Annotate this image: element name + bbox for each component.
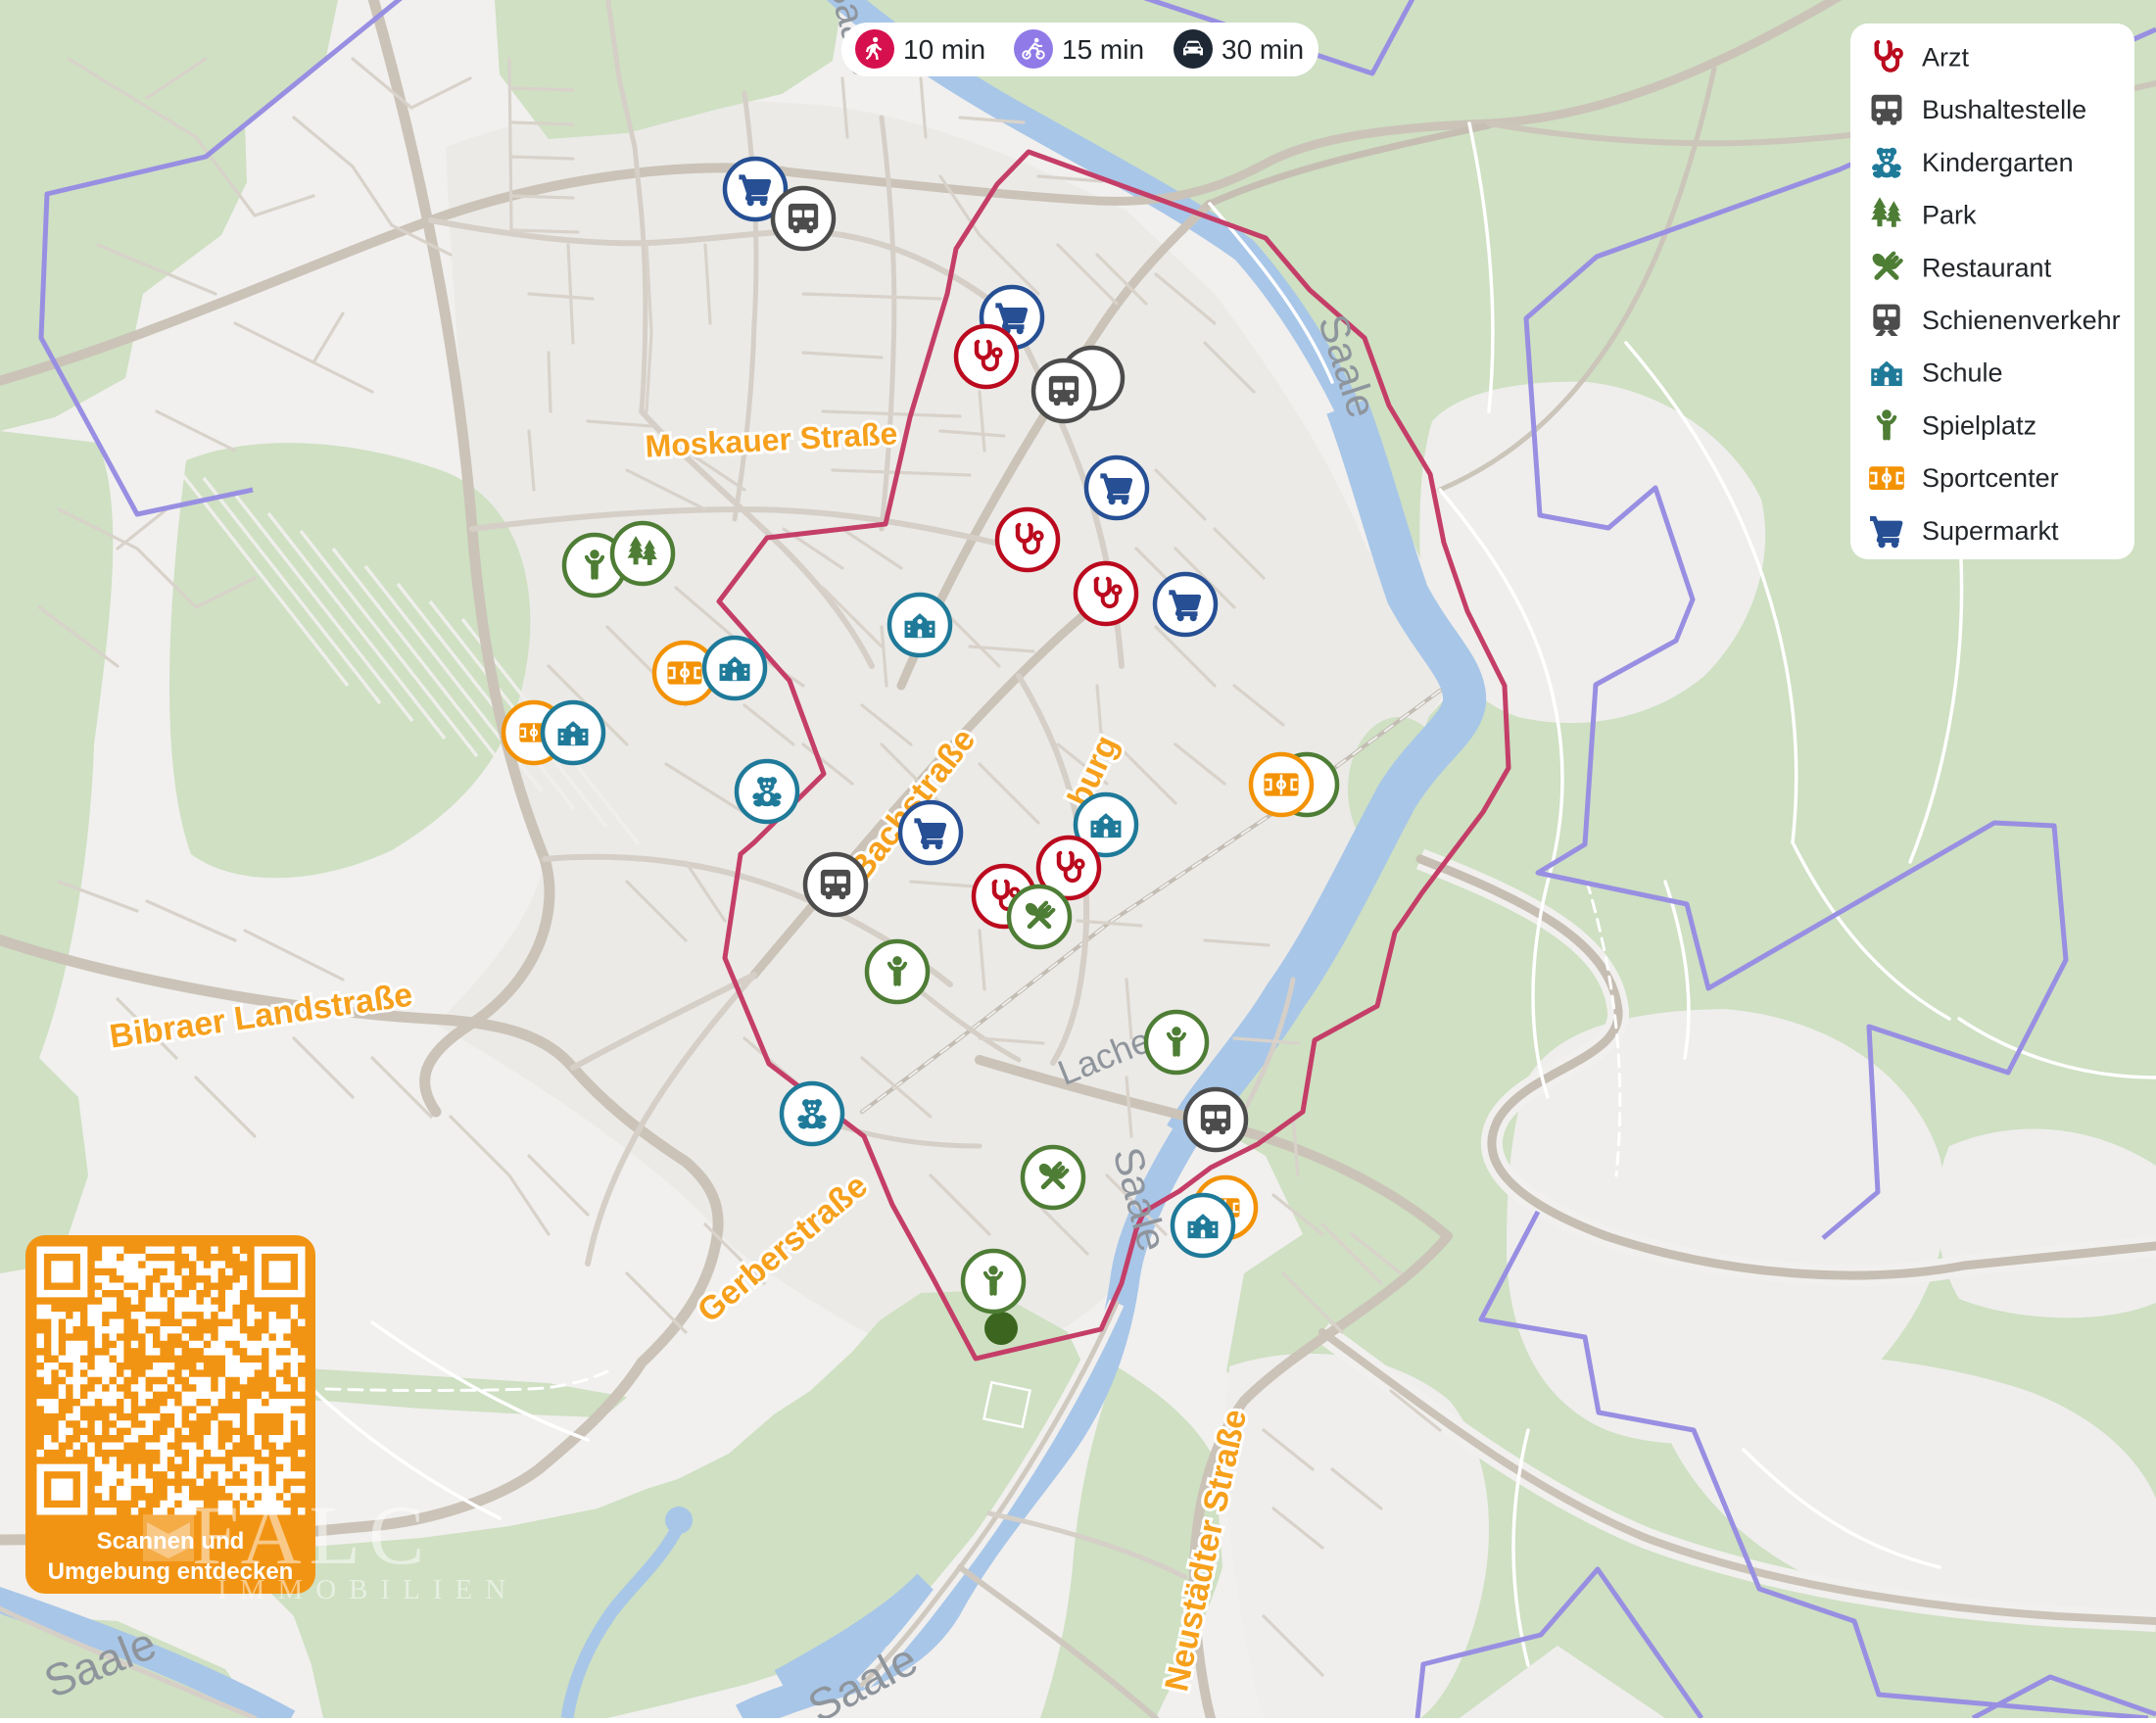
svg-text:30 min: 30 min bbox=[1222, 34, 1304, 65]
svg-text:Restaurant: Restaurant bbox=[1922, 253, 2052, 282]
svg-text:10 min: 10 min bbox=[903, 34, 985, 65]
svg-text:Supermarkt: Supermarkt bbox=[1922, 516, 2059, 546]
svg-text:Park: Park bbox=[1922, 201, 1977, 230]
svg-text:Sportcenter: Sportcenter bbox=[1922, 463, 2059, 493]
svg-text:Schienenverkehr: Schienenverkehr bbox=[1922, 306, 2121, 335]
svg-text:Spielplatz: Spielplatz bbox=[1922, 410, 2036, 440]
svg-text:15 min: 15 min bbox=[1062, 34, 1144, 65]
svg-text:Bushaltestelle: Bushaltestelle bbox=[1922, 95, 2086, 124]
svg-text:Schule: Schule bbox=[1922, 359, 2003, 388]
svg-text:IMMOBILIEN: IMMOBILIEN bbox=[217, 1574, 518, 1605]
svg-text:Arzt: Arzt bbox=[1922, 43, 1970, 72]
svg-text:Kindergarten: Kindergarten bbox=[1922, 148, 2074, 177]
svg-text:FALC: FALC bbox=[192, 1488, 432, 1582]
